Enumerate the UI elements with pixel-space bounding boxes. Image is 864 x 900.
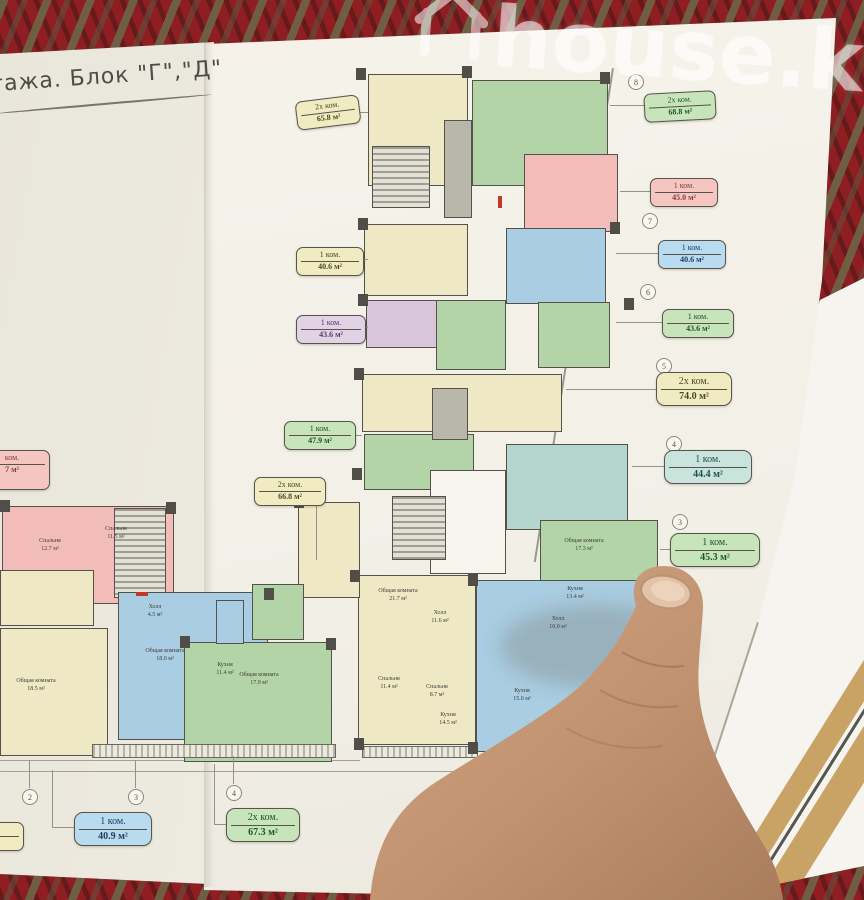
room-label: Спальня12.7 м² (24, 538, 76, 553)
badge-leader (610, 105, 644, 106)
room-label: Холл11.6 м² (414, 610, 466, 625)
unit-area-badge: 1 ком.44.4 м² (664, 450, 752, 484)
column (648, 576, 658, 588)
elevator-shaft (432, 388, 468, 440)
axis-number: 4 (226, 785, 242, 801)
axis-number: 3 (128, 789, 144, 805)
column (356, 68, 366, 80)
column (180, 636, 190, 648)
column (468, 574, 478, 586)
axis-leader (233, 756, 234, 784)
column (0, 500, 10, 512)
badge-leader (52, 770, 53, 828)
column (352, 468, 362, 480)
axis-leader (135, 760, 136, 788)
apartment-block (506, 228, 606, 304)
unit-area-badge: ком.7 м² (0, 450, 50, 490)
apartment-block (506, 444, 628, 530)
badge-leader (214, 764, 215, 824)
axis-number: 2 (22, 789, 38, 805)
apartment-block (216, 600, 244, 644)
apartment-block (436, 300, 506, 370)
unit-area-badge: 2х ком.67.3 м² (226, 808, 300, 842)
door-marker (498, 196, 502, 208)
apartment-block (0, 570, 94, 626)
room-label: Холл10.0 м² (534, 616, 582, 631)
column (166, 502, 176, 514)
apartment-block (524, 154, 618, 232)
room-label: Спальня11.4 м² (362, 676, 416, 691)
room-label: Общая комната18.5 м² (4, 678, 68, 693)
badge-leader (52, 827, 74, 828)
column (326, 638, 336, 650)
door-marker (136, 592, 148, 596)
unit-area-badge: 2х ком.66.8 м² (254, 477, 326, 506)
unit-area-badge: 1 ком.40.6 м² (658, 240, 726, 269)
badge-leader (632, 466, 664, 467)
room-label: Спальня11.5 м² (92, 526, 140, 541)
room-label: Спальня8.7 м² (414, 684, 460, 699)
room-label: Общая комната21.7 м² (360, 588, 436, 603)
balcony-strip (362, 746, 478, 758)
apartment-block (252, 584, 304, 640)
unit-area-badge: 2х ком.68.8 м² (643, 90, 716, 123)
column (354, 368, 364, 380)
dimension-line (0, 771, 480, 772)
unit-area-badge: 1 ком.45.3 м² (670, 533, 760, 567)
room-label: Кухня13.4 м² (552, 586, 598, 601)
unit-area-badge: 1 ком.47.9 м² (284, 421, 356, 450)
elevator-shaft (444, 120, 472, 218)
unit-area-badge: 2х ком.74.0 м² (656, 372, 732, 406)
room-label: Холл4.5 м² (136, 604, 174, 619)
axis-leader (29, 760, 30, 788)
stairwell (114, 508, 166, 598)
unit-area-badge: ком.м² (0, 822, 24, 851)
room-label: Общая комната17.3 м² (552, 538, 616, 553)
stairwell (372, 146, 430, 208)
unit-area-badge: 1 ком.45.0 м² (650, 178, 718, 207)
room-label: Спальня14.3 м² (606, 638, 658, 653)
balcony-strip (92, 744, 336, 758)
room-label: Общая комната18.1 м² (606, 686, 668, 701)
column (354, 738, 364, 750)
axis-number: 7 (642, 213, 658, 229)
column (264, 588, 274, 600)
unit-area-badge: 1 ком.40.6 м² (296, 247, 364, 276)
stairwell (392, 496, 446, 560)
column (468, 742, 478, 754)
apartment-block (298, 502, 360, 598)
apartment-block (538, 302, 610, 368)
unit-area-badge: 1 ком.40.9 м² (74, 812, 152, 846)
room-label: Кухня15.0 м² (498, 688, 546, 703)
badge-leader (620, 191, 650, 192)
axis-number: 8 (628, 74, 644, 90)
room-label: Общая комната17.9 м² (228, 672, 290, 687)
unit-area-badge: 1 ком.43.6 м² (662, 309, 734, 338)
apartment-block (476, 580, 656, 752)
axis-number: 3 (672, 514, 688, 530)
photo-floorplan-booklet: тажа. Блок "Г","Д" Обща (0, 0, 864, 900)
badge-leader (616, 253, 658, 254)
column (610, 222, 620, 234)
column (624, 298, 634, 310)
badge-leader (616, 322, 662, 323)
column (350, 570, 360, 582)
apartment-block (364, 224, 468, 296)
unit-area-badge: 1 ком.43.6 м² (296, 315, 366, 344)
column (600, 72, 610, 84)
column (462, 66, 472, 78)
room-label: Кухня14.5 м² (424, 712, 472, 727)
room-label: Общая комната18.0 м² (134, 648, 196, 663)
badge-leader (566, 389, 656, 390)
column (358, 294, 368, 306)
axis-number: 6 (640, 284, 656, 300)
column (358, 218, 368, 230)
